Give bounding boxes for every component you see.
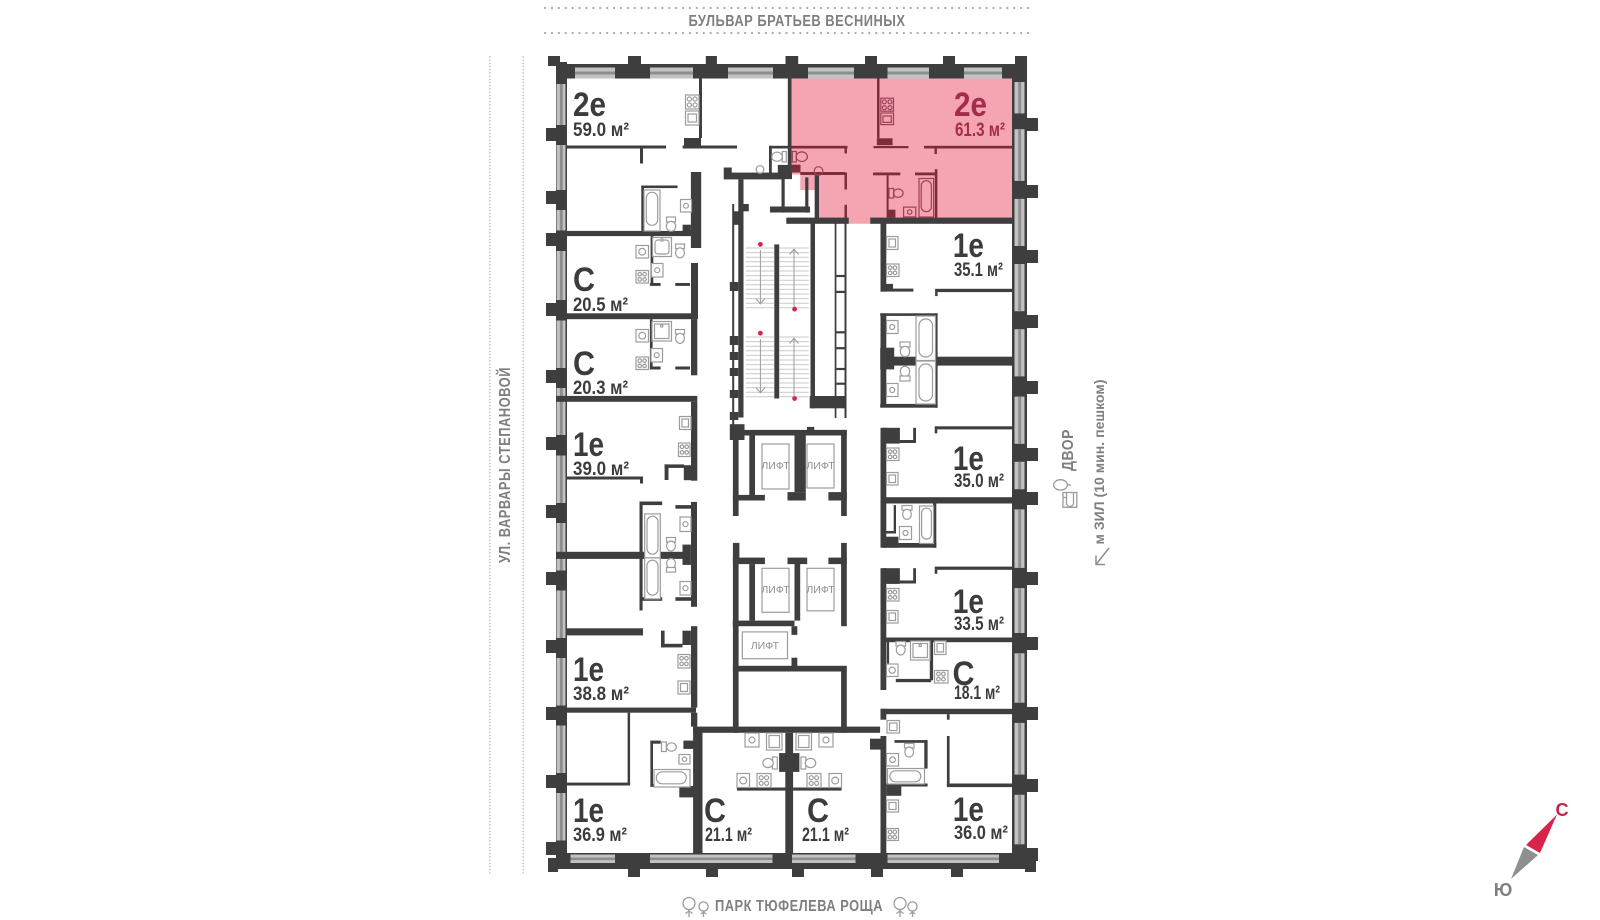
svg-text:36.0 м²: 36.0 м² [954, 822, 1008, 844]
svg-text:61.3 м²: 61.3 м² [955, 119, 1005, 141]
svg-text:35.0 м²: 35.0 м² [954, 470, 1004, 492]
svg-text:ЛИФТ: ЛИФТ [761, 460, 790, 472]
svg-text:20.3 м²: 20.3 м² [573, 377, 628, 399]
svg-text:УЛ. ВАРВАРЫ СТЕПАНОВОЙ: УЛ. ВАРВАРЫ СТЕПАНОВОЙ [496, 367, 514, 563]
svg-text:20.5 м²: 20.5 м² [573, 294, 628, 316]
svg-text:ЛИФТ: ЛИФТ [806, 460, 835, 472]
svg-text:ДВОР: ДВОР [1060, 429, 1077, 471]
svg-text:38.8 м²: 38.8 м² [573, 683, 629, 705]
svg-text:18.1 м²: 18.1 м² [954, 682, 1000, 704]
svg-text:21.1 м²: 21.1 м² [802, 824, 849, 846]
svg-text:39.0 м²: 39.0 м² [573, 458, 629, 480]
svg-text:Ю: Ю [1494, 880, 1513, 900]
svg-text:ЛИФТ: ЛИФТ [751, 640, 780, 652]
svg-text:ЛИФТ: ЛИФТ [806, 584, 835, 596]
svg-text:36.9 м²: 36.9 м² [573, 824, 627, 846]
svg-text:59.0 м²: 59.0 м² [573, 119, 629, 141]
svg-text:ЛИФТ: ЛИФТ [761, 584, 790, 596]
svg-text:33.5 м²: 33.5 м² [954, 613, 1004, 635]
svg-text:м ЗИЛ (10 мин. пешком): м ЗИЛ (10 мин. пешком) [1091, 380, 1107, 545]
svg-text:35.1 м²: 35.1 м² [954, 259, 1003, 281]
svg-text:ПАРК ТЮФЕЛЕВА РОЩА: ПАРК ТЮФЕЛЕВА РОЩА [715, 898, 883, 915]
svg-text:С: С [1556, 800, 1569, 820]
svg-text:БУЛЬВАР БРАТЬЕВ ВЕСНИНЫХ: БУЛЬВАР БРАТЬЕВ ВЕСНИНЫХ [689, 13, 906, 30]
svg-text:21.1 м²: 21.1 м² [705, 824, 752, 846]
